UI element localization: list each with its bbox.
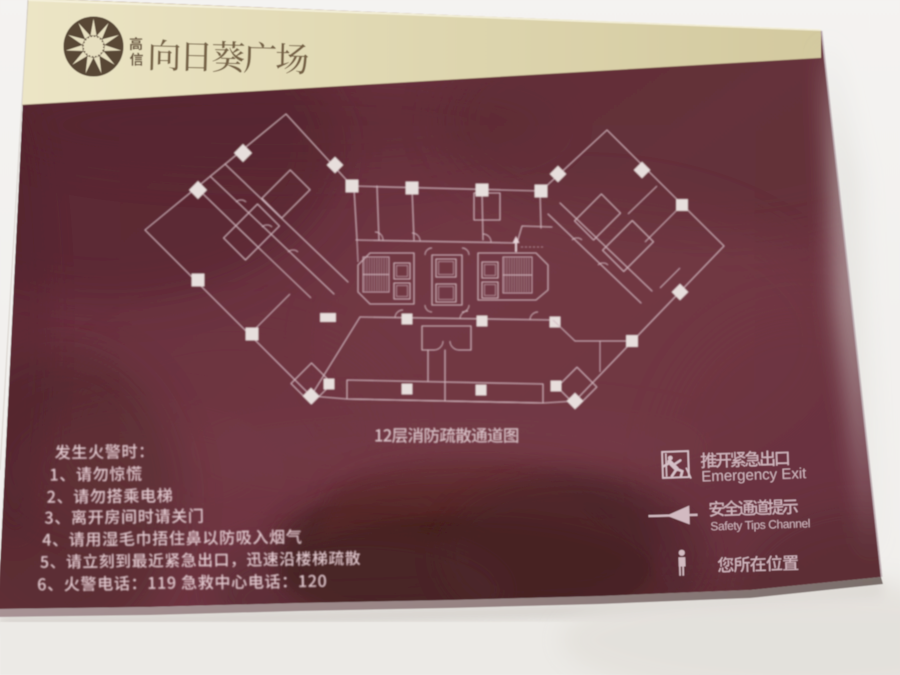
svg-text:Emergency Exit: Emergency Exit (701, 465, 807, 485)
